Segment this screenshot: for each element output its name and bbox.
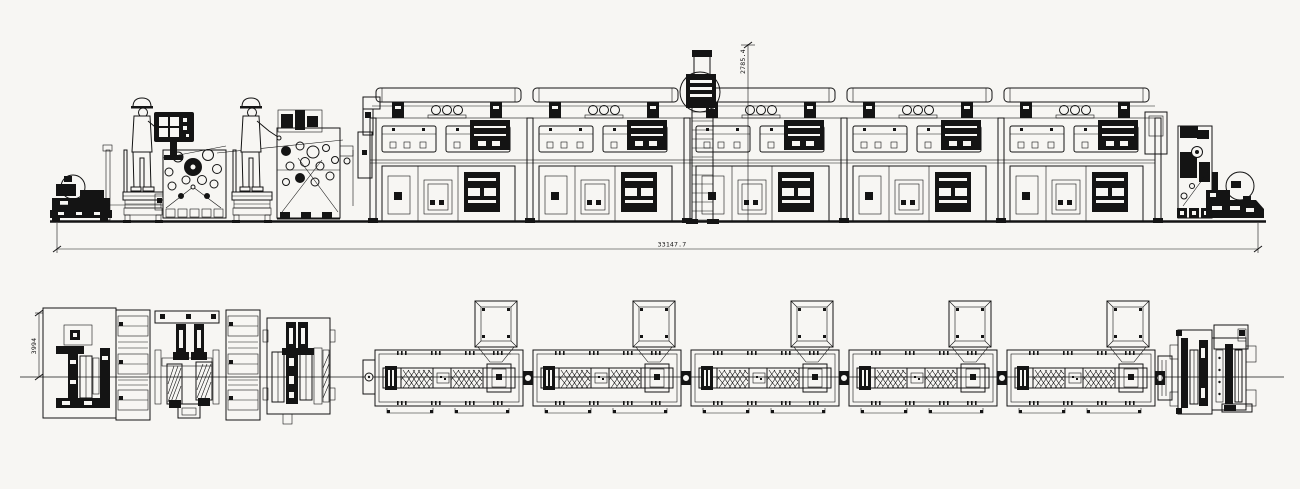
duct-elbow [363, 97, 380, 109]
total-length-label: 33147.7 [658, 241, 687, 249]
operator-1 [131, 98, 172, 191]
support-column [1155, 118, 1161, 222]
rewinder-footprint [1170, 325, 1256, 414]
hmi-screen [154, 112, 194, 142]
dryer-module-4 [839, 88, 998, 223]
dryer-module-1-plan [375, 301, 533, 413]
unwinder-elevation [50, 145, 112, 222]
dryer-module-5-plan [1007, 301, 1165, 413]
dimension-stack-height: 2785.4 [739, 42, 755, 221]
dimension-total-length: 33147.7 [53, 223, 1262, 253]
dryer-module-2-plan [533, 301, 691, 413]
production-line-drawing: 33147.7 [0, 0, 1300, 489]
technical-drawing-page: 33147.7 [0, 0, 1300, 489]
walkway-2 [226, 310, 260, 420]
dryer-module-2 [525, 88, 684, 223]
walkway-1 [116, 310, 150, 420]
coater-unit-1-footprint [155, 311, 219, 418]
dryer-module-3-plan [691, 301, 849, 413]
plan-view: 3994 [20, 301, 1284, 424]
dryer-module-4-plan [849, 301, 1007, 413]
unwinder-footprint [43, 308, 116, 418]
hmi-panel [154, 112, 194, 160]
coater-unit-2-footprint [263, 318, 335, 424]
coater-unit-2-elevation [277, 110, 353, 219]
dimension-line-width: 3994 [30, 310, 43, 380]
operator-2 [240, 98, 281, 191]
stack-height-label: 2785.4 [739, 49, 747, 74]
dryer-train-plan [363, 301, 1172, 413]
dryer-module-1 [368, 88, 527, 223]
ladder [692, 106, 713, 224]
elevation-view: 33147.7 [50, 42, 1266, 253]
dryer-module-3 [682, 88, 841, 223]
line-width-label: 3994 [30, 338, 38, 354]
rewinder-elevation [1177, 126, 1264, 218]
dryer-train-elevation [358, 88, 1167, 223]
dryer-module-5 [996, 88, 1155, 223]
